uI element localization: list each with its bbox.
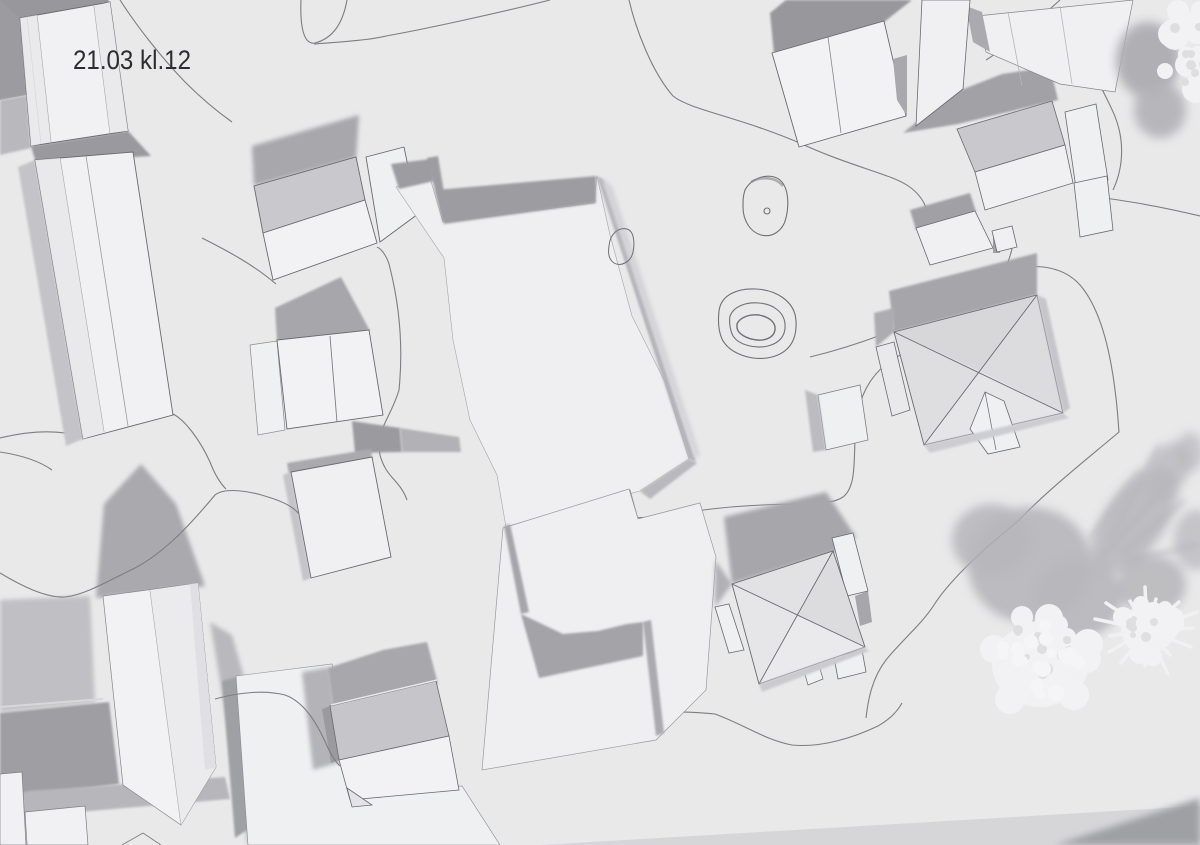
svg-text:21.03 kl.12: 21.03 kl.12 [73, 45, 191, 75]
